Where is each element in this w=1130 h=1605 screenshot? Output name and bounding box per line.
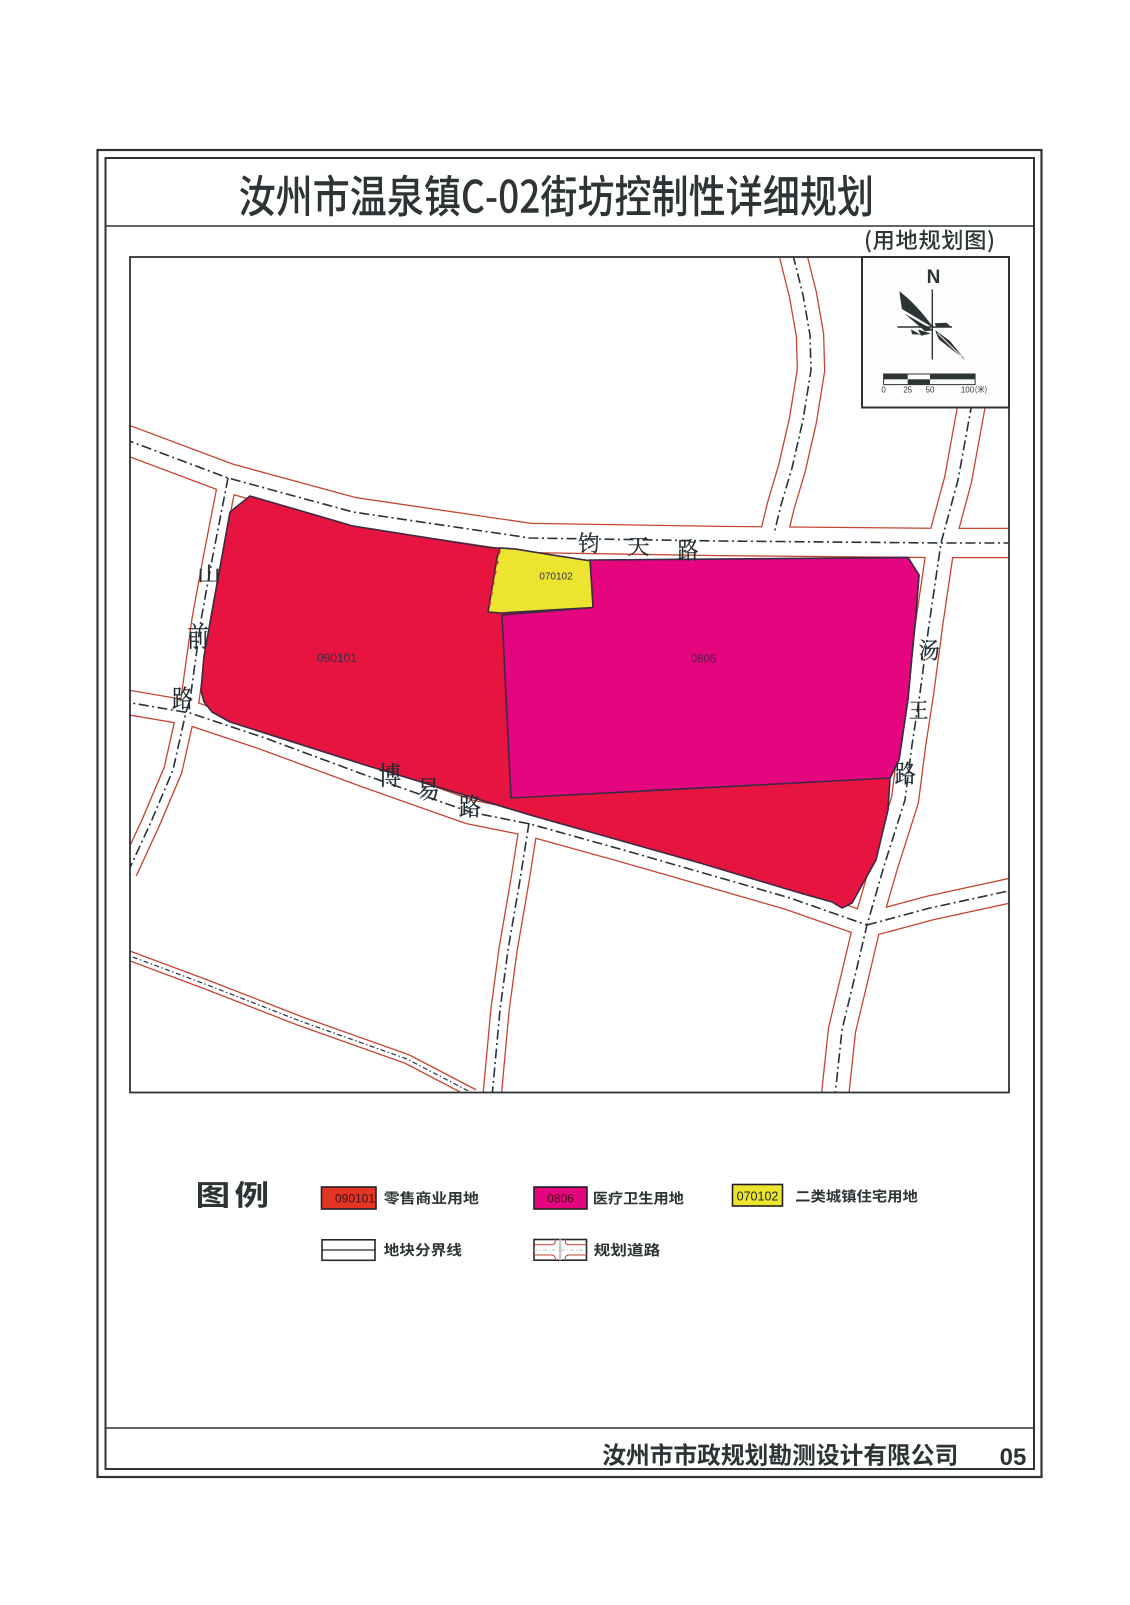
- svg-text:070102: 070102: [737, 1190, 779, 1204]
- svg-text:100: 100: [961, 386, 975, 395]
- svg-text:05: 05: [1000, 1444, 1027, 1471]
- svg-text:N: N: [927, 267, 941, 288]
- svg-text:070102: 070102: [539, 572, 573, 583]
- svg-text:090101: 090101: [335, 1192, 375, 1206]
- svg-text:50: 50: [926, 386, 935, 395]
- svg-text:25: 25: [903, 386, 912, 395]
- svg-text:0806: 0806: [691, 654, 717, 666]
- svg-text:0: 0: [881, 386, 886, 395]
- svg-text:0806: 0806: [547, 1192, 574, 1206]
- svg-text:090101: 090101: [317, 651, 357, 665]
